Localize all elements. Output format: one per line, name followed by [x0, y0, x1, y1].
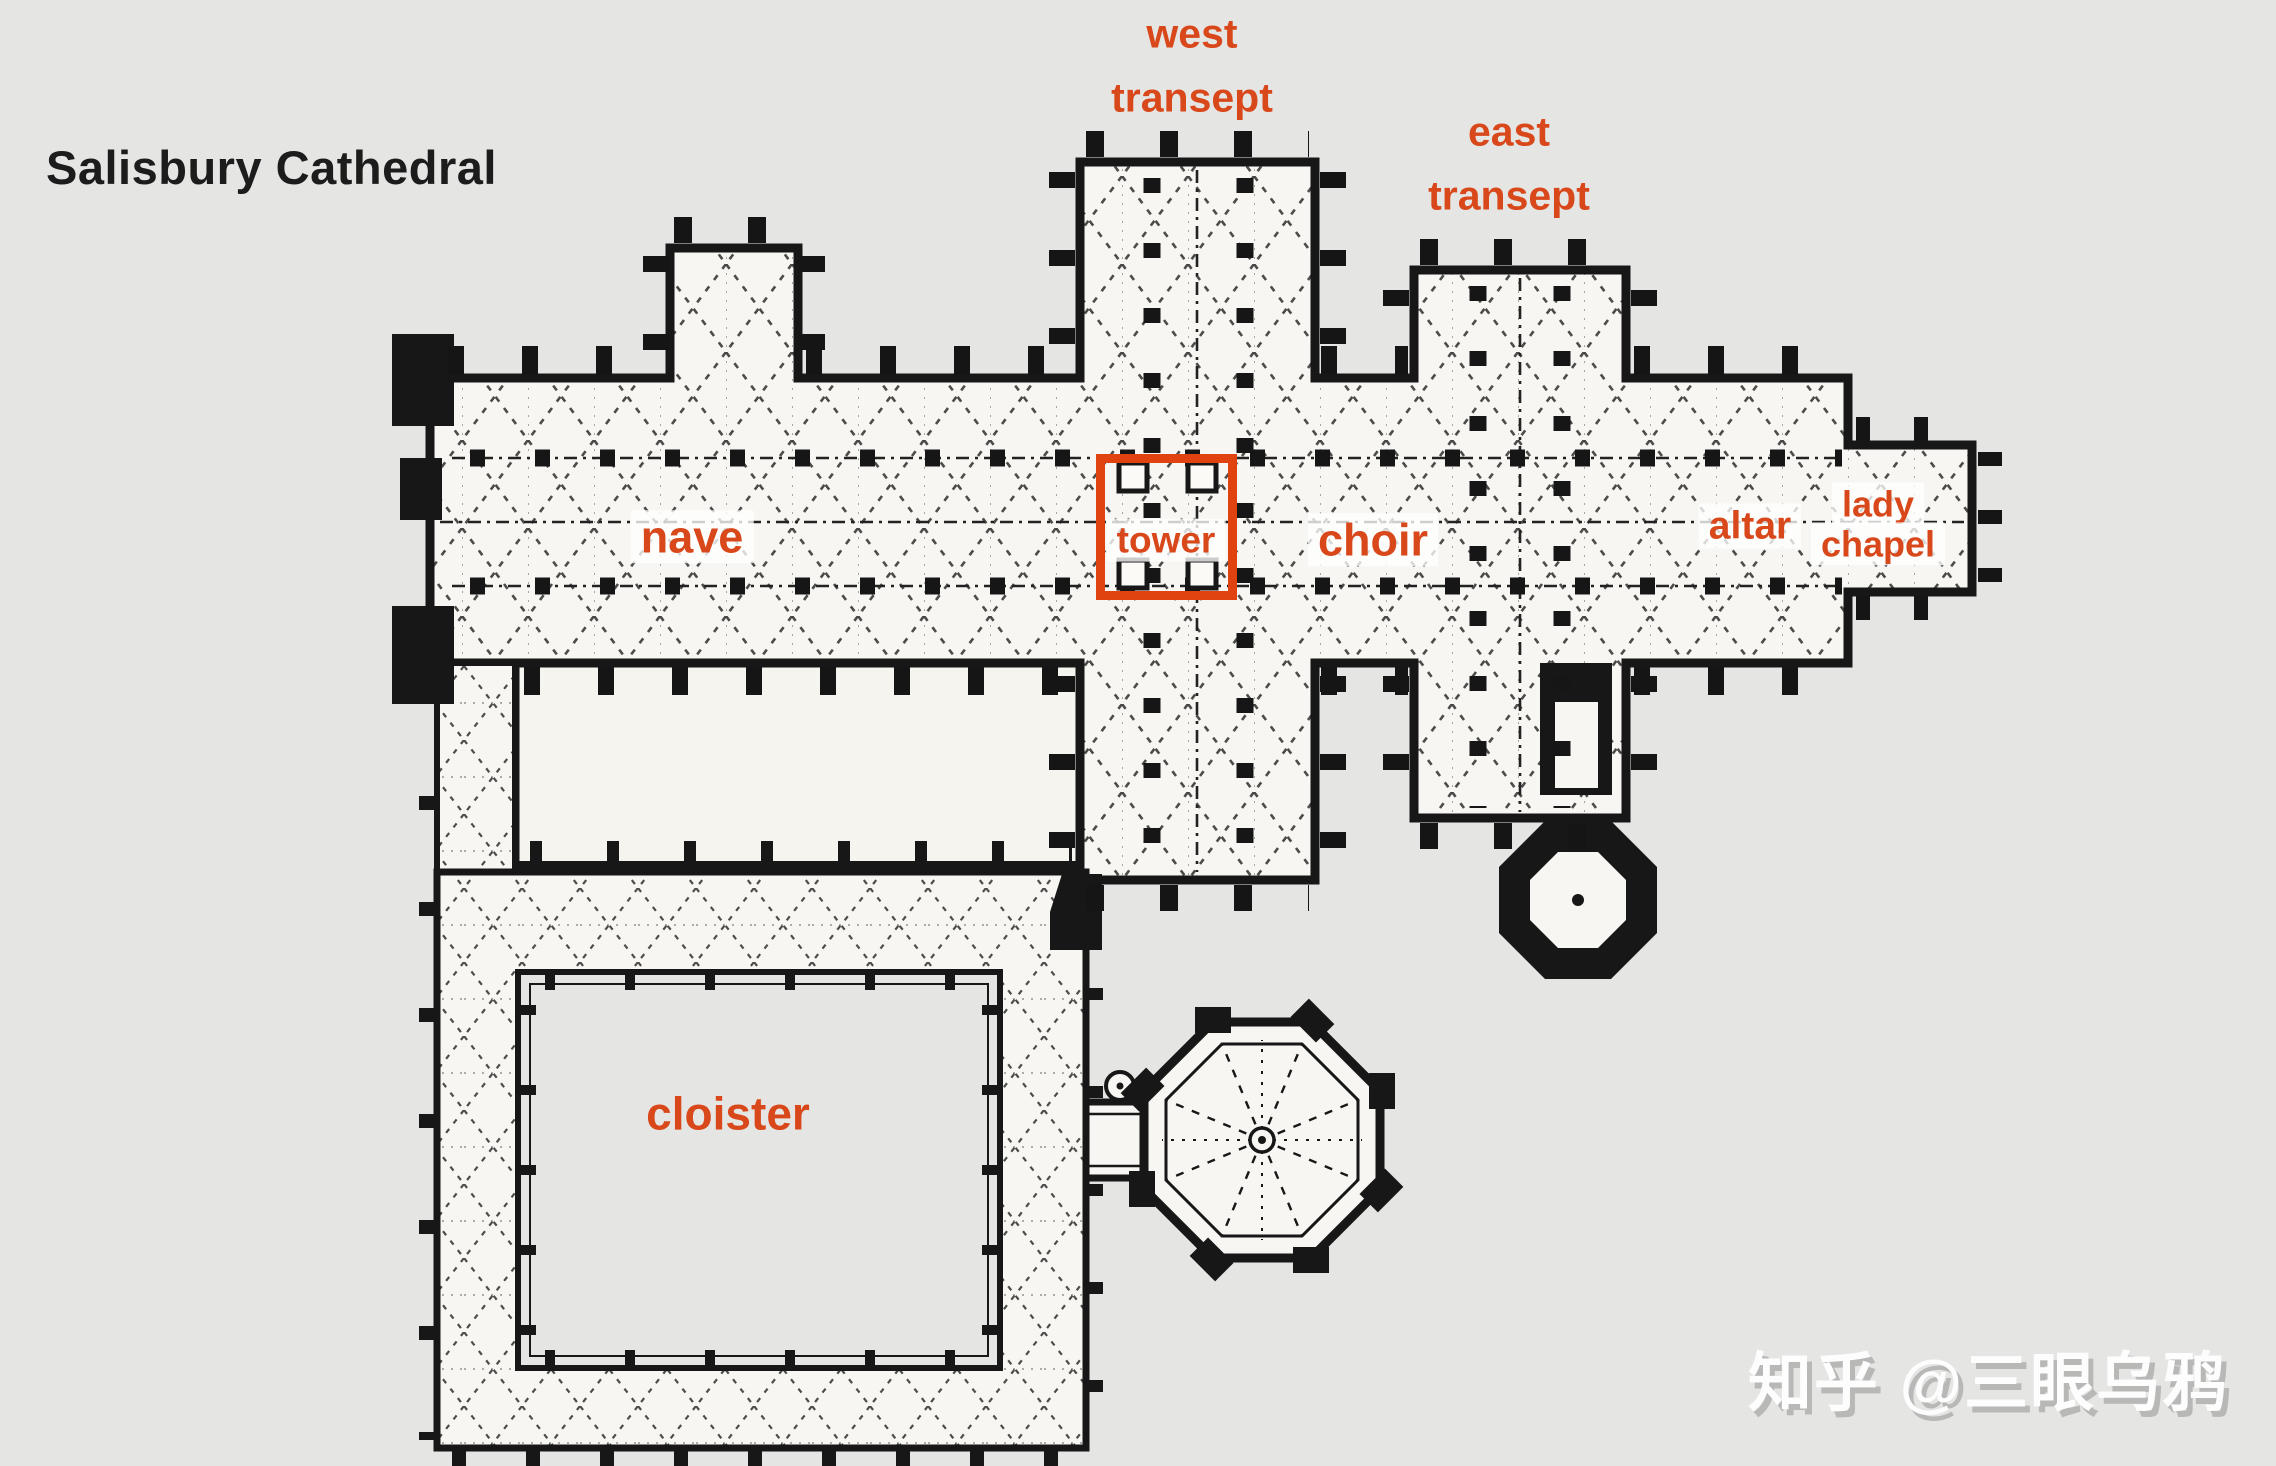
label-cloister: cloister [646, 1089, 810, 1140]
label-west-transept: west transept [1111, 2, 1273, 129]
label-east-transept-line1: east [1468, 108, 1550, 154]
label-east-transept: east transept [1428, 100, 1590, 227]
page-title: Salisbury Cathedral [46, 140, 497, 195]
watermark: 知乎 @三眼乌鸦 [1748, 1332, 2228, 1424]
label-nave: nave [631, 512, 754, 562]
label-east-transept-line2: transept [1428, 172, 1590, 218]
label-altar: altar [1699, 506, 1801, 549]
label-lady-chapel-line1: lady [1832, 482, 1924, 525]
chapter-house [1086, 999, 1403, 1282]
plumbery-court [515, 667, 1080, 866]
label-west-transept-line2: transept [1111, 74, 1273, 120]
label-choir: choir [1308, 515, 1438, 565]
label-lady-chapel: lady chapel [1811, 484, 1945, 563]
label-lady-chapel-line2: chapel [1811, 522, 1945, 565]
label-tower: tower [1107, 521, 1226, 562]
floor-plan-drawing [0, 0, 2276, 1466]
label-west-transept-line1: west [1146, 10, 1237, 56]
cloister-garth [518, 972, 1000, 1368]
